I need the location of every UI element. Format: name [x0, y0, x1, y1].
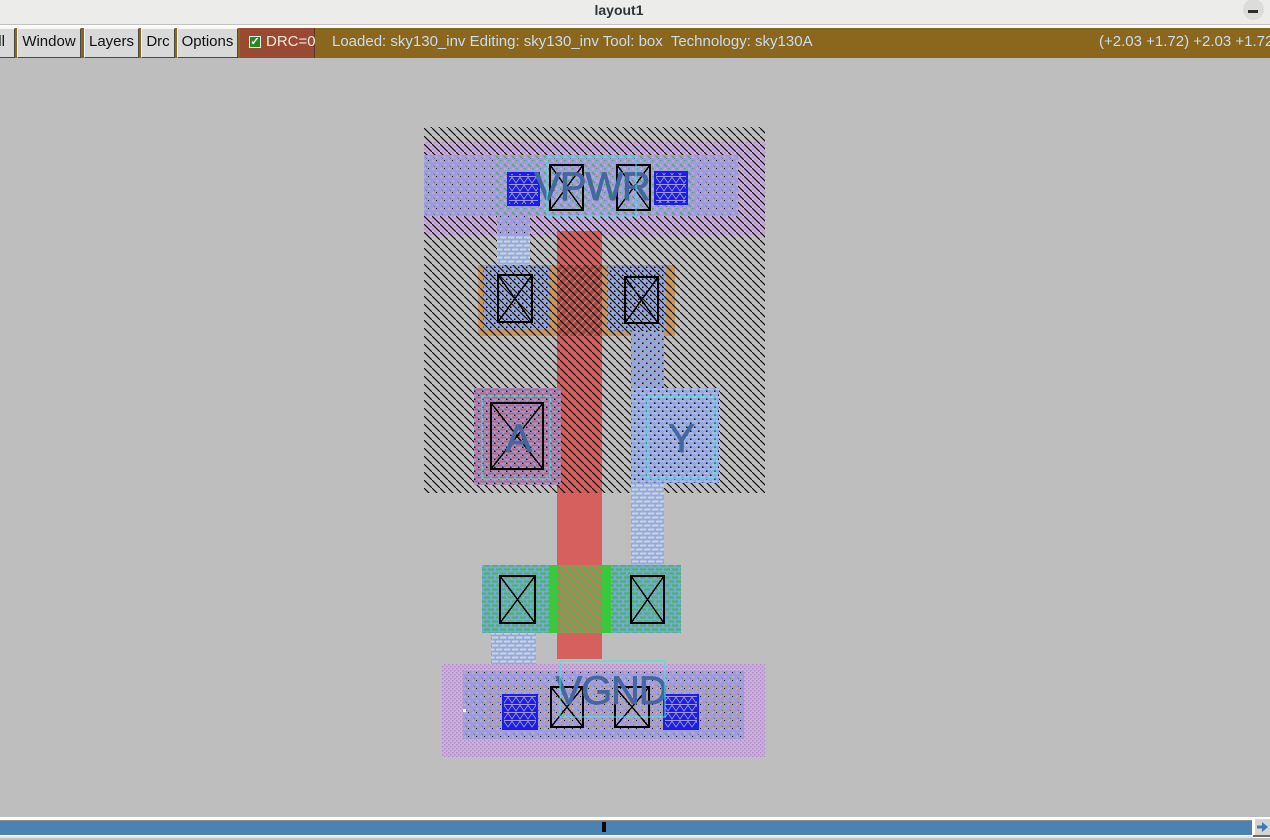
svg-text:VGND: VGND — [556, 669, 667, 713]
svg-text:VPWR: VPWR — [534, 165, 650, 209]
svg-text:Y: Y — [668, 417, 694, 461]
svg-text:A: A — [505, 417, 532, 461]
